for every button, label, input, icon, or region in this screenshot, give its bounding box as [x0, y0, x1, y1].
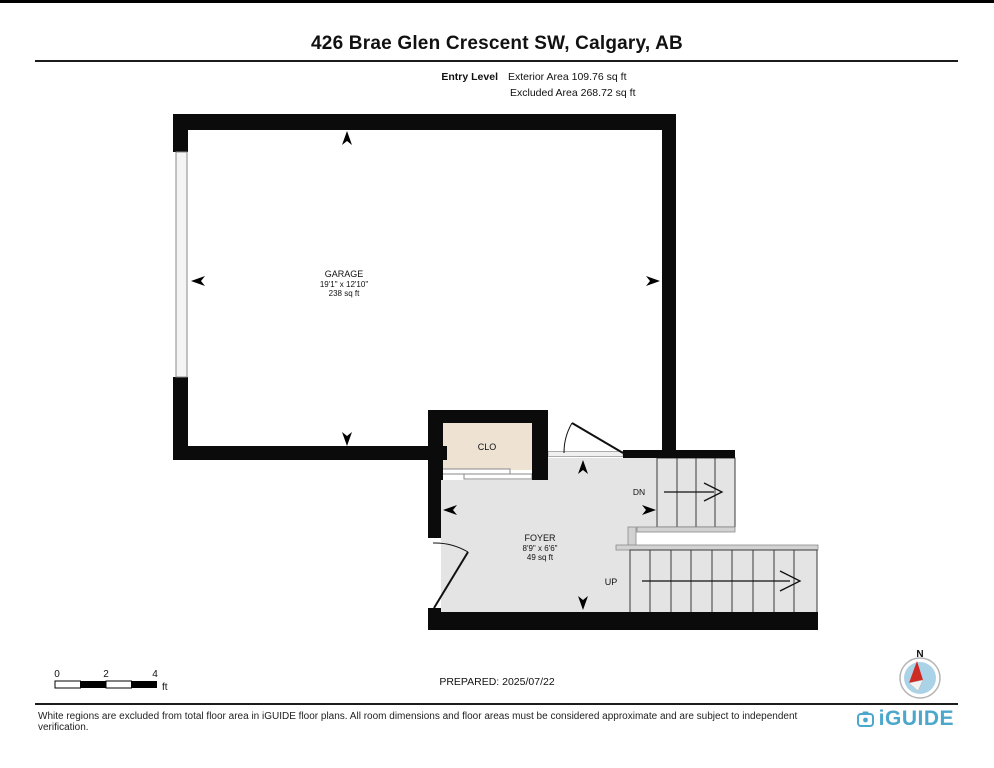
header-divider — [35, 60, 958, 62]
scale-bar: 0 2 4 ft — [54, 669, 168, 693]
garage-label: GARAGE — [325, 269, 364, 279]
excluded-area-text: Excluded Area 268.72 sq ft — [510, 87, 636, 99]
prepared-date: PREPARED: 2025/07/22 — [439, 676, 555, 688]
entry-wall-top — [623, 450, 735, 458]
stairs-up — [616, 545, 818, 613]
closet-bypass-door — [442, 469, 510, 474]
closet-bypass-door — [464, 474, 532, 479]
arrow-right-icon — [646, 276, 660, 286]
foyer-area: 49 sq ft — [527, 553, 554, 562]
stairs-down-label: DN — [633, 487, 645, 497]
top-border — [0, 0, 994, 3]
page-title: 426 Brae Glen Crescent SW, Calgary, AB — [0, 33, 994, 55]
exterior-area-text: Exterior Area 109.76 sq ft — [508, 71, 626, 83]
closet-label: CLO — [478, 442, 497, 452]
stair-gap — [636, 533, 660, 546]
garage-wall-right — [662, 114, 676, 458]
garage-dimensions: 19'1" x 12'10" — [320, 280, 368, 289]
iguide-camera-icon — [856, 710, 875, 728]
scale-unit: ft — [162, 682, 168, 693]
footer-disclaimer: White regions are excluded from total fl… — [38, 711, 808, 733]
garage-wall-left-upper — [173, 114, 188, 152]
garage-wall-bottom — [173, 446, 447, 460]
floor-plan-page: 426 Brae Glen Crescent SW, Calgary, AB E… — [0, 0, 994, 768]
foyer-dimensions: 8'9" x 6'6" — [523, 544, 558, 553]
stairs-up-label: UP — [605, 577, 618, 587]
scale-tick-4: 4 — [152, 669, 158, 680]
foyer-wall-left-upper — [428, 460, 441, 538]
arrow-left-icon — [191, 276, 205, 286]
entry-door — [564, 423, 623, 453]
garage-door — [176, 152, 187, 377]
closet-wall-right — [532, 410, 548, 480]
scale-tick-2: 2 — [103, 669, 109, 680]
compass: N — [900, 649, 940, 698]
floor-plan-drawing: GARAGE 19'1" x 12'10" 238 sq ft CLO FOYE… — [0, 100, 994, 706]
foyer-label: FOYER — [524, 533, 556, 543]
scale-tick-0: 0 — [54, 669, 60, 680]
door-leaf — [572, 423, 623, 453]
closet-wall-top — [428, 410, 548, 423]
level-label: Entry Level — [0, 71, 498, 83]
bottom-wall — [428, 612, 818, 630]
entry-threshold — [548, 452, 623, 457]
footer-divider — [35, 703, 958, 705]
garage-wall-top — [173, 114, 676, 130]
arrow-up-icon — [342, 131, 352, 145]
door-arc — [564, 423, 572, 453]
arrow-down-icon — [342, 432, 352, 446]
iguide-logo: iGUIDE — [856, 707, 954, 731]
iguide-logo-text: iGUIDE — [879, 707, 954, 731]
garage-area: 238 sq ft — [329, 289, 360, 298]
